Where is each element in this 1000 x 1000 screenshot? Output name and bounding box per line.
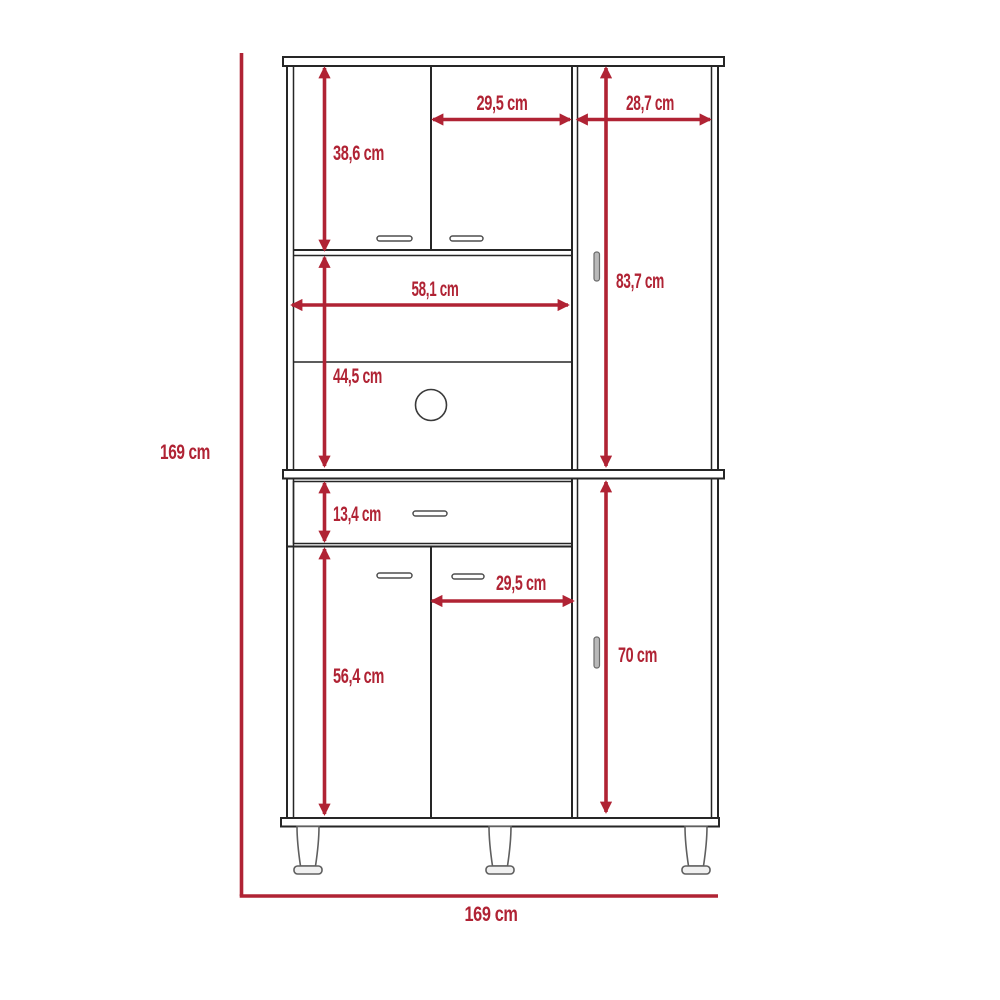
cabinet-structure [281, 57, 724, 874]
middle-counter-board [283, 470, 724, 479]
dim-lower-middle-door-width-label: 29,5 cm [496, 572, 546, 595]
leg-shape [297, 827, 319, 867]
dim-open-compartment-width-label: 58,1 cm [412, 278, 459, 301]
upper-middle-door-handle [450, 236, 483, 241]
upper-cabinet-body [287, 66, 718, 470]
cabinet-top-board [283, 57, 724, 66]
cabinet-dimension-diagram: 169 cm 169 cm 38,6 cm 29,5 cm 28,7 cm 83… [0, 0, 1000, 1000]
dim-open-compartment-height-label: 44,5 cm [333, 365, 382, 388]
diagram-svg: 169 cm 169 cm 38,6 cm 29,5 cm 28,7 cm 83… [0, 0, 1000, 1000]
leg-foot [486, 866, 514, 874]
overall-height-label: 169 cm [160, 441, 210, 464]
dim-lower-left-door-height-label: 56,4 cm [333, 665, 384, 688]
cabinet-leg-right [682, 827, 710, 875]
dim-upper-right-section-width-label: 28,7 cm [626, 92, 674, 115]
lower-right-door-handle [594, 637, 600, 668]
lower-left-door-handle [377, 573, 412, 578]
drawer-handle [413, 511, 447, 516]
leg-foot [682, 866, 710, 874]
leg-foot [294, 866, 322, 874]
dim-upper-right-door-height-label: 83,7 cm [616, 270, 664, 293]
upper-left-door-handle [377, 236, 412, 241]
cabinet-leg-center [486, 827, 514, 875]
cabinet-leg-left [294, 827, 322, 875]
dim-lower-right-door-height-label: 70 cm [618, 644, 657, 667]
dim-drawer-height-label: 13,4 cm [333, 503, 381, 526]
cabinet-plinth [281, 818, 719, 827]
lower-middle-door-handle [452, 574, 484, 579]
overall-width-label: 169 cm [465, 903, 518, 926]
leg-shape [489, 827, 511, 867]
upper-right-door-handle [594, 252, 600, 281]
dim-upper-left-door-height-label: 38,6 cm [333, 142, 384, 165]
leg-shape [685, 827, 707, 867]
dim-upper-middle-door-width-label: 29,5 cm [477, 92, 528, 115]
